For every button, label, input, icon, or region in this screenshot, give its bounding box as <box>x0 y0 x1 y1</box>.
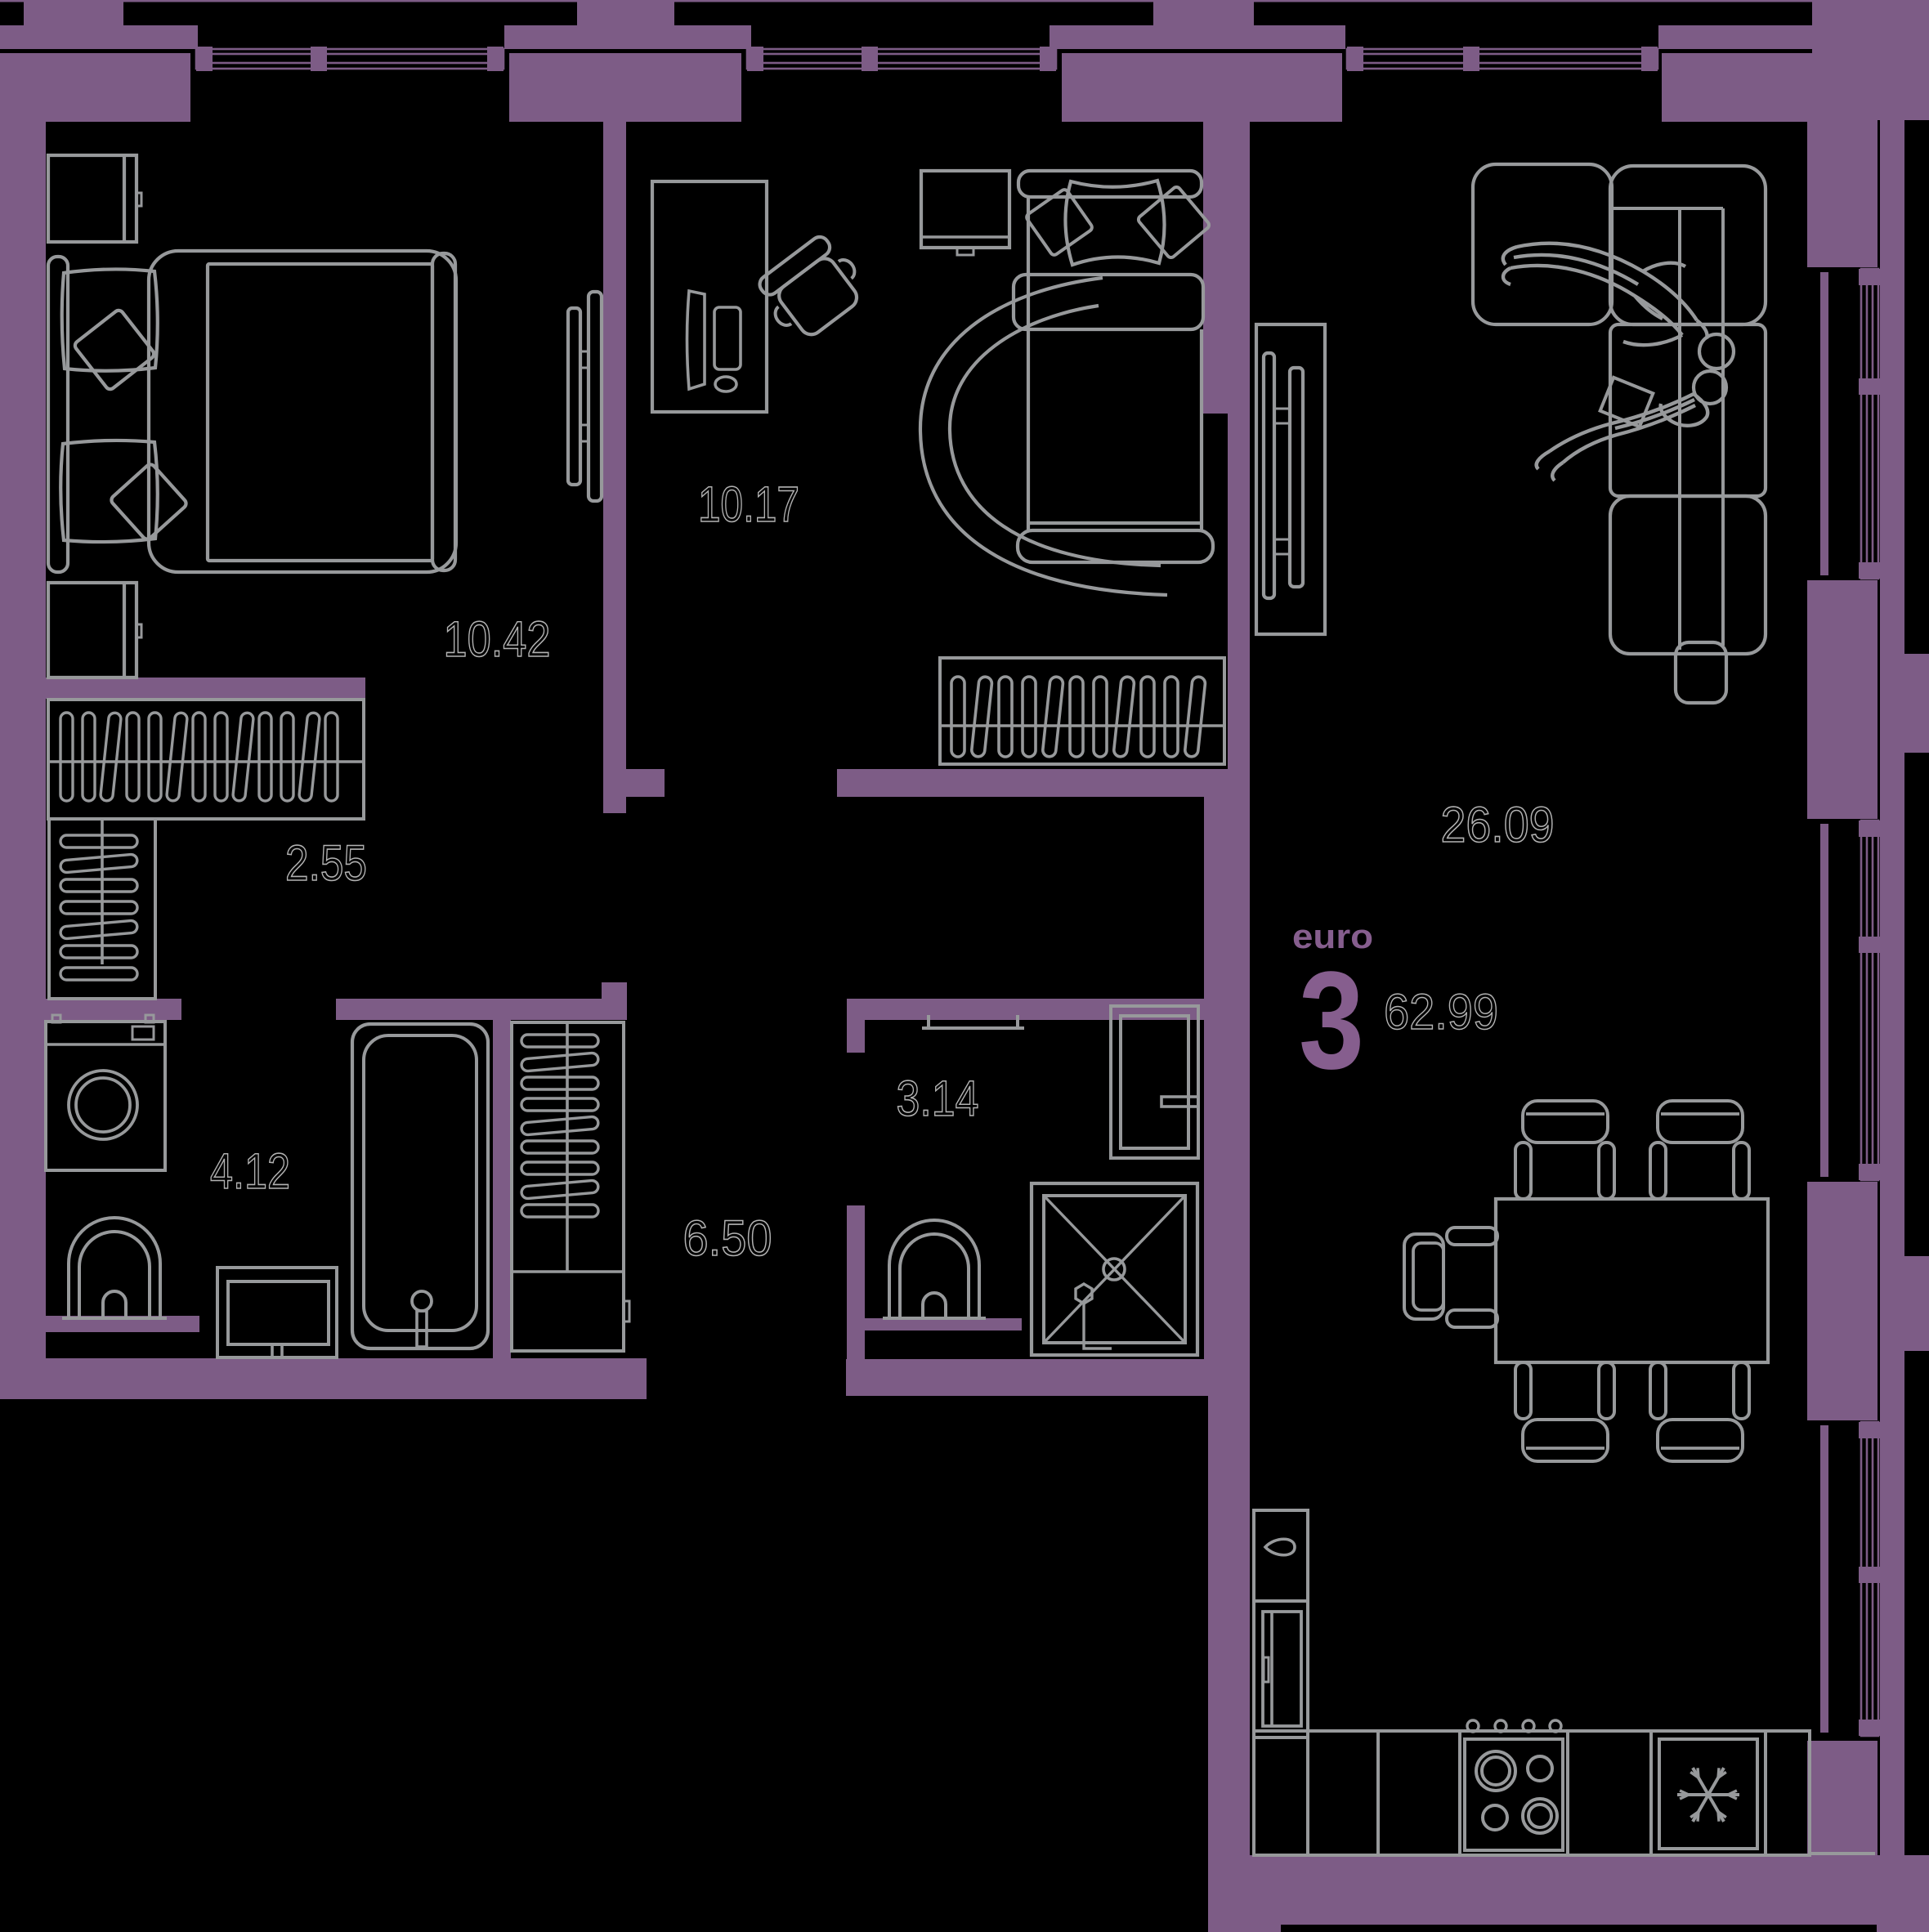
svg-text:4.12: 4.12 <box>210 1143 290 1199</box>
svg-text:10.17: 10.17 <box>698 476 799 532</box>
svg-text:3.14: 3.14 <box>897 1071 979 1126</box>
svg-text:2.55: 2.55 <box>285 835 367 891</box>
svg-text:62.99: 62.99 <box>1384 984 1498 1040</box>
svg-text:3: 3 <box>1299 943 1364 1098</box>
svg-text:6.50: 6.50 <box>683 1210 772 1266</box>
svg-text:26.09: 26.09 <box>1441 797 1555 852</box>
svg-text:10.42: 10.42 <box>444 611 551 667</box>
